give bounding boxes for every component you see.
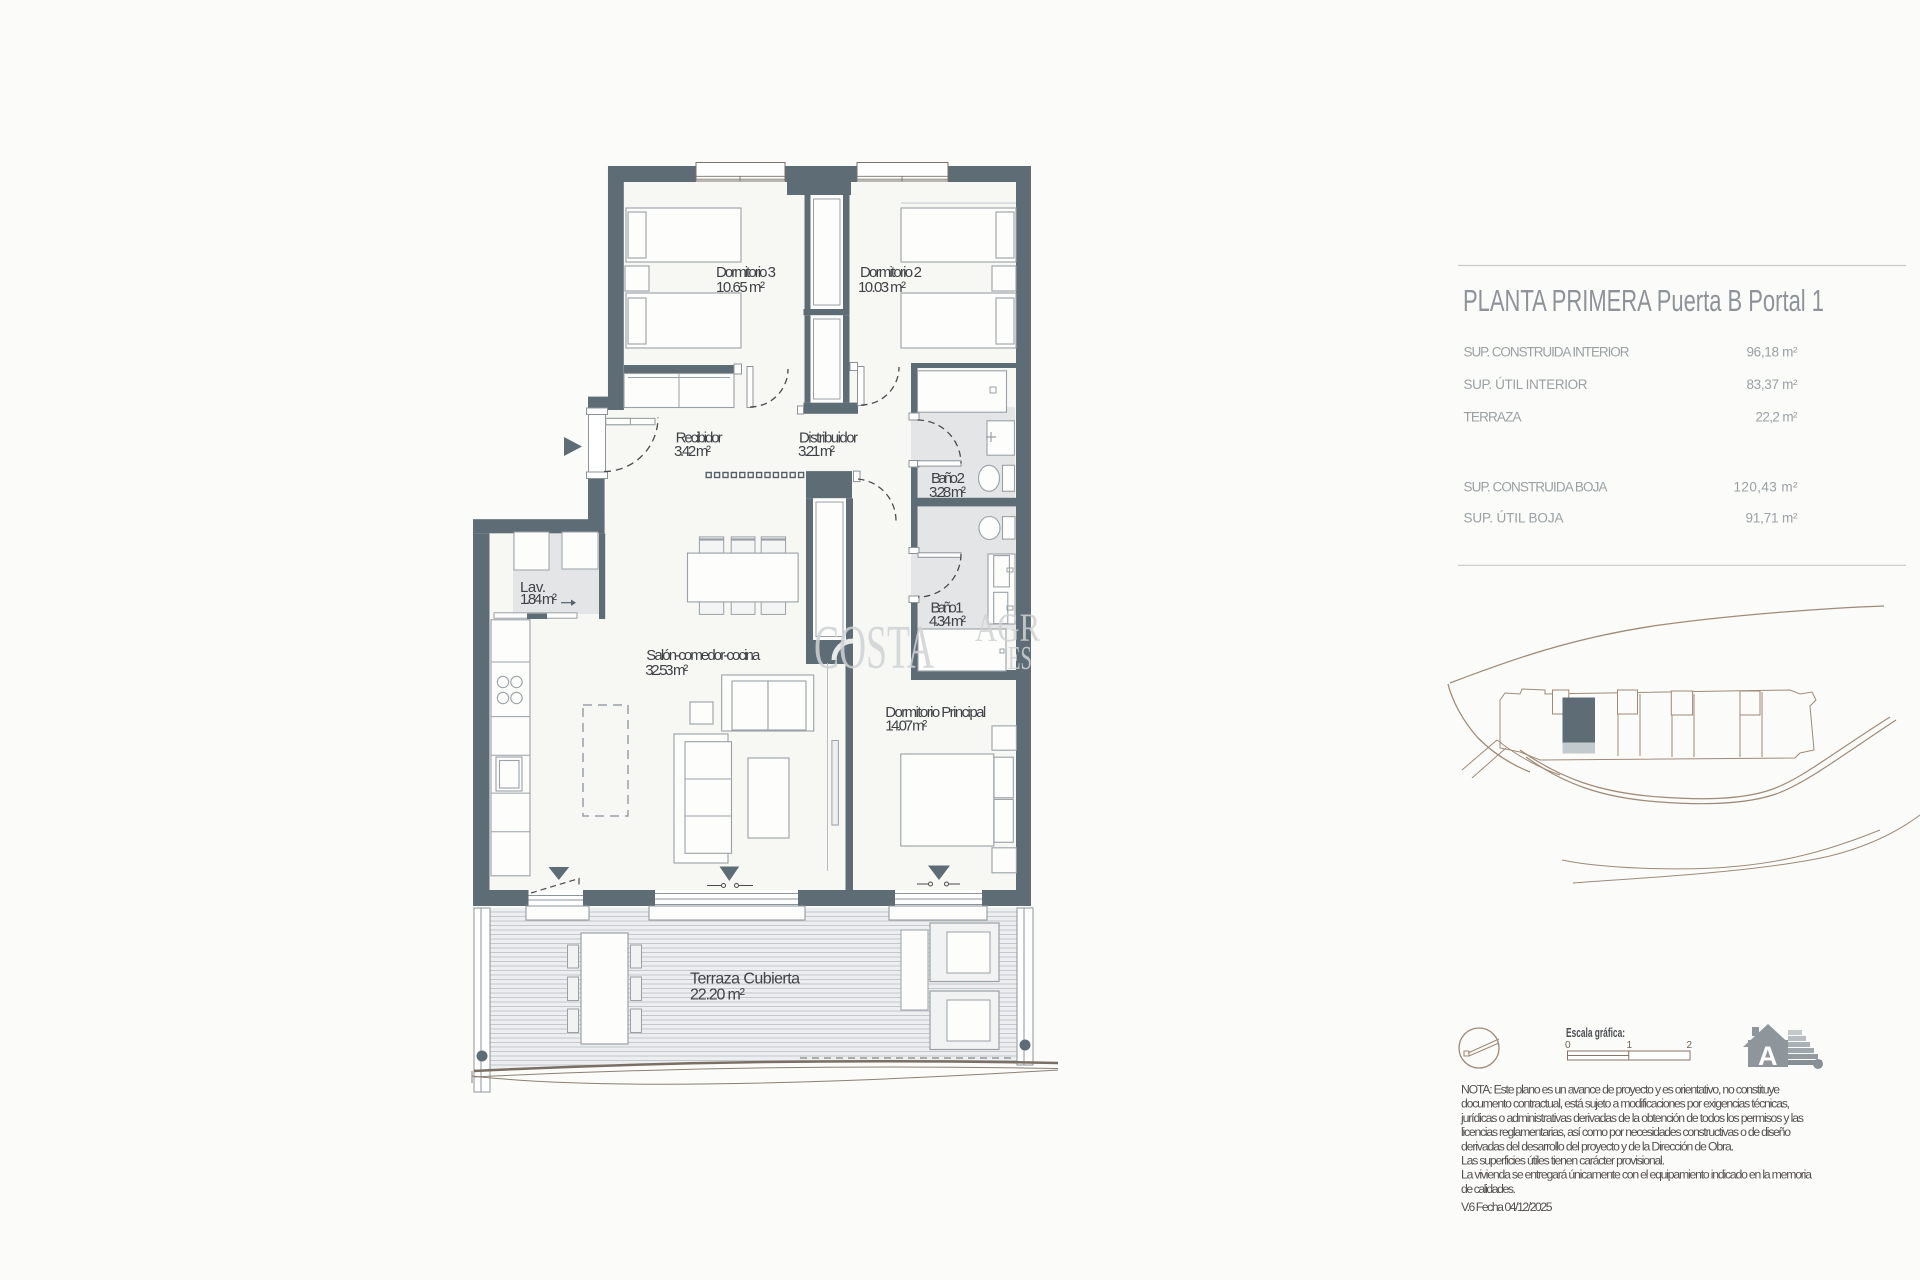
- svg-text:PLANTA PRIMERA Puerta B Port: PLANTA PRIMERA Puerta B Portal 1: [1463, 283, 1824, 318]
- svg-text:SUP. ÚTIL INTERIOR: SUP. ÚTIL INTERIOR: [1464, 377, 1588, 392]
- svg-text:10.03 m²: 10.03 m²: [858, 279, 906, 296]
- svg-text:V.6 Fecha 04/12/2025: V.6 Fecha 04/12/2025: [1461, 1200, 1553, 1214]
- svg-text:91,71 m²: 91,71 m²: [1746, 511, 1799, 526]
- svg-text:documento contractual, está su: documento contractual, está sujeto a mod…: [1461, 1097, 1790, 1111]
- svg-text:Terraza Cubierta: Terraza Cubierta: [690, 971, 800, 988]
- svg-text:NOTA: Este plano es un avance: NOTA: Este plano es un avance de proyect…: [1461, 1083, 1780, 1097]
- svg-text:3.21 m²: 3.21 m²: [798, 443, 835, 460]
- svg-text:Escala gráfica:: Escala gráfica:: [1566, 1026, 1625, 1040]
- svg-text:1: 1: [1627, 1040, 1633, 1051]
- svg-text:COSTA: COSTA: [814, 614, 934, 682]
- svg-text:4.34 m²: 4.34 m²: [929, 613, 966, 630]
- svg-text:120,43 m²: 120,43 m²: [1734, 480, 1799, 495]
- svg-text:22,2 m²: 22,2 m²: [1756, 409, 1799, 424]
- svg-text:A: A: [1758, 1041, 1778, 1071]
- svg-text:32.53 m²: 32.53 m²: [645, 662, 688, 679]
- svg-text:2: 2: [1687, 1040, 1693, 1051]
- svg-text:1.84 m²: 1.84 m²: [520, 591, 557, 608]
- svg-text:SUP. ÚTIL BOJA: SUP. ÚTIL BOJA: [1464, 511, 1564, 526]
- svg-text:licencias reglamentarias, así: licencias reglamentarias, así como por n…: [1461, 1125, 1791, 1139]
- svg-text:La vivienda se entregará única: La vivienda se entregará únicamente con …: [1461, 1168, 1812, 1182]
- svg-text:14.07 m²: 14.07 m²: [885, 718, 927, 735]
- svg-text:SUP. CONSTRUIDA BOJA: SUP. CONSTRUIDA BOJA: [1464, 480, 1608, 495]
- svg-text:TERRAZA: TERRAZA: [1464, 409, 1522, 424]
- svg-text:jurídicas o administrativas de: jurídicas o administrativas derivadas de…: [1460, 1111, 1804, 1125]
- svg-text:Las superficies útiles tienen: Las superficies útiles tienen carácter p…: [1461, 1154, 1665, 1168]
- svg-text:3.42 m²: 3.42 m²: [674, 443, 711, 460]
- svg-text:SUP. CONSTRUIDA INTERIOR: SUP. CONSTRUIDA INTERIOR: [1464, 345, 1630, 360]
- svg-text:ES: ES: [1008, 640, 1032, 677]
- svg-text:10.65 m²: 10.65 m²: [716, 279, 765, 296]
- svg-text:derivadas del desarrollo del p: derivadas del desarrollo del proyecto y …: [1461, 1139, 1734, 1153]
- svg-text:83,37 m²: 83,37 m²: [1747, 377, 1799, 392]
- svg-text:de calidades.: de calidades.: [1461, 1182, 1516, 1196]
- svg-text:0: 0: [1565, 1040, 1571, 1051]
- svg-text:3.28 m²: 3.28 m²: [929, 484, 966, 501]
- svg-text:22.20 m²: 22.20 m²: [690, 987, 746, 1004]
- svg-text:96,18 m²: 96,18 m²: [1747, 345, 1799, 360]
